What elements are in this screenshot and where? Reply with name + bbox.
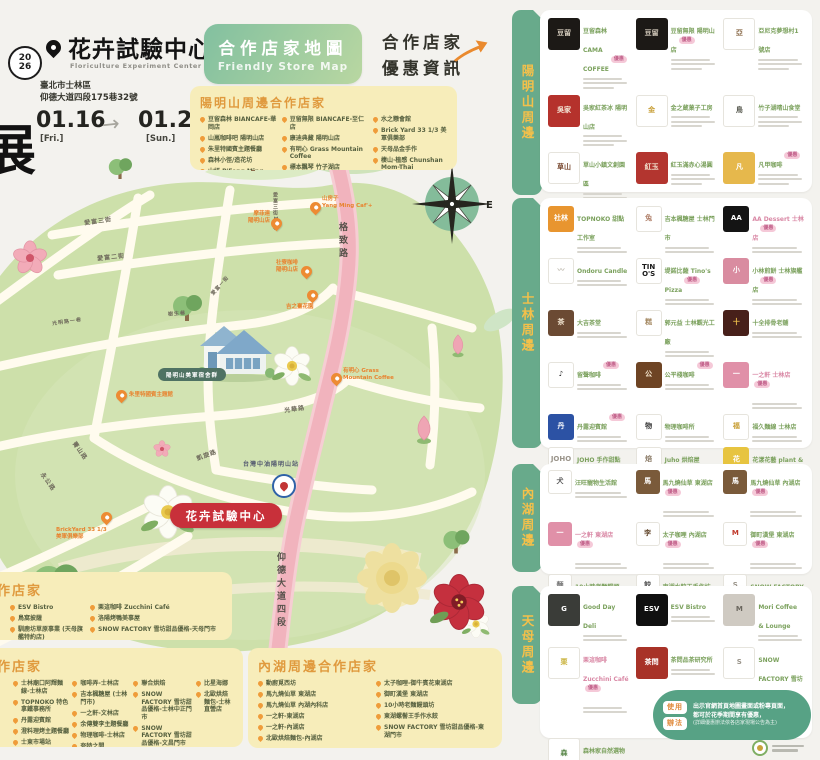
store-list-item[interactable]: 東湖螺髻王手作水餃: [376, 713, 490, 721]
store-column: 咖啡弄-士林店吉本楓糖屋 (士林門市)一之軒-文林店余傳雙李主題餐廳物理咖啡-士…: [72, 680, 130, 747]
store-list-item[interactable]: 物理咖啡-士林店: [72, 732, 130, 740]
store-name: Brick Yard 33 1/3 美軍俱樂部: [381, 127, 447, 142]
map-pin-icon: [375, 713, 382, 720]
store-name: 10小時老麵饅頭坊: [384, 702, 490, 710]
store-list-item[interactable]: 栗這咖啡 Zucchini Café: [90, 604, 218, 612]
store-list-item[interactable]: 北歐烘焙麵包-士林直營店: [196, 691, 233, 714]
fine-print-line: [671, 174, 710, 176]
store-logo: TINO'S: [636, 258, 662, 284]
store-column: 豆留森林 BIANCAFE-華岡店山嵐咖啡吧 陽明山店朱里特國賓主題餐廳森林小徑…: [200, 116, 278, 170]
fine-print-line: [665, 303, 715, 305]
store-card[interactable]: AA AA Dessert 士林店優惠: [723, 206, 804, 253]
pin-label-line: 吉之臺花園: [286, 304, 314, 311]
store-card[interactable]: 草山 草山小鎮文創園區: [548, 152, 629, 204]
discount-badge: 優惠: [752, 489, 768, 496]
store-list-item[interactable]: 太子咖哩-御牛賓花東湖店: [376, 680, 490, 688]
map-pin-icon: [89, 626, 96, 633]
store-list-item[interactable]: SNOW FACTORY 雪坊甜品優格-文昌門市: [133, 725, 193, 748]
store-card-text: 豆留森林 CAMA COFFEE優惠: [583, 18, 629, 89]
store-card[interactable]: 丹 丹露迎賓館優惠: [548, 414, 629, 442]
store-card-name: 吳家紅茶冰 陽明山店: [583, 105, 627, 131]
map-pin-icon: [195, 680, 202, 687]
store-card[interactable]: 社林 TOPNOKO 甜點工作室: [548, 206, 629, 253]
store-list-item[interactable]: 士東市場站: [13, 739, 69, 747]
store-card-text: 栗這咖啡 Zucchini Café優惠: [583, 647, 629, 713]
store-card[interactable]: 馬 馬九燒仙草 東湖店優惠: [636, 470, 717, 517]
store-card-text: 郭元益 士林觀光工廠: [665, 310, 717, 357]
fine-print-line: [758, 116, 797, 118]
fine-print-line: [575, 496, 627, 498]
store-logo: 草山: [548, 152, 580, 184]
map-pin-icon: [375, 724, 382, 731]
store-card-text: 凡甲咖啡優惠: [758, 152, 804, 185]
store-card-name: 森林家自然選物: [583, 748, 625, 755]
store-card[interactable]: 栗 栗這咖啡 Zucchini Café優惠: [548, 647, 629, 732]
year-bottom: 26: [19, 63, 32, 72]
discount-badge: 優惠: [577, 541, 593, 548]
store-card-name: Mori Coffee & Lounge: [758, 604, 797, 630]
store-logo: 兔: [636, 206, 662, 232]
store-card-text: Mori Coffee & Lounge: [758, 594, 804, 641]
store-logo: 鳥: [723, 95, 755, 127]
map-pin-icon: [195, 691, 202, 698]
store-card[interactable]: M 御町漢堡 東湖店優惠: [723, 522, 804, 569]
discount-badge: 優惠: [603, 362, 619, 369]
store-list-item[interactable]: 夸特之間: [72, 743, 130, 748]
store-card-name: JOHO 手作甜點: [577, 457, 621, 464]
fine-print-line: [577, 388, 627, 390]
store-card-text: TOPNOKO 甜點工作室: [577, 206, 629, 253]
road-label-yangde: 仰德大道四段: [274, 552, 287, 630]
fine-print-line: [577, 251, 627, 253]
store-card-text: 小林煎餅 士林旗艦店優惠: [752, 258, 804, 305]
store-card[interactable]: 〰 Ondoru Candle: [548, 258, 629, 305]
store-card[interactable]: 鳥 竹子湖晴山食堂: [723, 95, 804, 147]
store-card-name: 物理咖啡所: [665, 424, 695, 431]
store-card-text: 物理咖啡所: [665, 414, 717, 442]
store-card[interactable]: 茶 大吉茶堂: [548, 310, 629, 357]
store-card[interactable]: 糕 郭元益 士林觀光工廠: [636, 310, 717, 357]
fine-print-line: [671, 178, 715, 180]
shilin-store-list: 士林周邊合作店家 士林廟口阿輝麵線-士林店TOPNOKO 特色拿鐵事務所丹露迎賓…: [0, 648, 243, 747]
map-pin-icon: [199, 134, 206, 141]
store-logo: 亞: [723, 18, 755, 50]
store-name: 山妍 P'Feng Ming Caf'+: [208, 168, 278, 171]
store-card[interactable]: G Good Day Deli: [548, 594, 629, 641]
fine-print-line: [750, 511, 796, 513]
store-card-name: 栗這咖啡 Zucchini Café: [583, 657, 629, 683]
store-logo: 社林: [548, 206, 574, 232]
store-list-item[interactable]: 山妍 P'Feng Ming Caf'+: [200, 168, 278, 171]
store-name: SNOW FACTORY 雪坊甜品優格-士林中正門市: [141, 691, 193, 721]
store-logo: 豆留: [636, 18, 668, 50]
store-card-text: 大吉茶堂: [577, 310, 629, 338]
store-logo: 豆留: [548, 18, 580, 50]
fine-print-line: [577, 436, 621, 438]
fine-print-line: [758, 183, 789, 185]
fine-print-line: [671, 63, 715, 65]
store-list-item[interactable]: 洛陽烤鴨美事屋: [90, 615, 218, 623]
store-list-item[interactable]: 比星海娜: [196, 680, 233, 688]
fine-print-line: [583, 135, 622, 137]
store-logo: 栗: [548, 647, 580, 679]
store-list-item[interactable]: SNOW FACTORY 雪坊甜品優格-東湖門市: [376, 724, 490, 739]
store-card[interactable]: 金 金之蔵菓子工房: [636, 95, 717, 147]
fine-print-line: [583, 82, 627, 84]
store-name: 山嵐咖啡吧 陽明山店: [208, 135, 278, 143]
store-card-name: ESV Bistro: [671, 604, 706, 611]
tree-icon: [109, 158, 132, 179]
fine-print-line: [577, 247, 621, 249]
store-card-text: 吉本楓糖屋 士林門市: [665, 206, 717, 253]
store-list-item[interactable]: 豆留森林 BIANCAFE-華岡店: [200, 116, 278, 131]
store-list-item[interactable]: 山嵐咖啡吧 陽明山店: [200, 135, 278, 143]
store-name: 北歐烘焙麵包-內湖店: [266, 735, 372, 743]
tab-neihu[interactable]: 內湖周邊: [512, 464, 542, 572]
store-card[interactable]: 福 福久麵線 士林店: [723, 414, 804, 442]
banner-title: 合作店家地圖: [219, 35, 348, 59]
tab-tianmu[interactable]: 天母周邊: [512, 586, 542, 704]
fine-print-line: [671, 669, 710, 671]
usage-badge: 使用: [663, 701, 687, 714]
tab-label: 士林周邊: [518, 292, 537, 354]
store-list-item[interactable]: 余傳雙李主題餐廳: [72, 721, 130, 729]
store-map-banner: 合作店家地圖 Friendly Store Map: [204, 24, 362, 84]
house-label: 陽明山美軍宿舍群: [158, 368, 226, 381]
store-logo: 李: [636, 522, 660, 546]
store-column: 太子咖哩-御牛賓花東湖店御町漢堡 東湖店10小時老麵饅頭坊東湖螺髻王手作水餃SN…: [376, 680, 490, 743]
map-pin-icon: [132, 724, 139, 731]
store-card[interactable]: 馬 馬九燒仙草 內湖店優惠: [723, 470, 804, 517]
fine-print-line: [758, 59, 797, 61]
fine-print-line: [577, 384, 621, 386]
store-list-item[interactable]: 士林廟口阿輝麵線-士林店: [13, 680, 69, 695]
store-name: 比星海娜: [204, 680, 233, 688]
fine-print-line: [583, 78, 622, 80]
fine-print-line: [575, 563, 621, 565]
map-pin-icon: [132, 691, 139, 698]
discount-badge: 優惠: [784, 152, 800, 159]
address-line1: 臺北市士林區: [40, 80, 138, 92]
center-venue-badge[interactable]: 花卉試驗中心: [170, 503, 282, 528]
store-card[interactable]: 兔 吉本楓糖屋 士林門市: [636, 206, 717, 253]
map-pin-icon: [9, 626, 16, 633]
map-pin-icon: [132, 680, 139, 687]
store-name: 物理咖啡-士林店: [80, 732, 130, 740]
store-card[interactable]: M Mori Coffee & Lounge: [723, 594, 804, 641]
discount-badge: 優惠: [611, 56, 627, 63]
fine-print-line: [671, 59, 710, 61]
store-card-name: 留聲咖啡: [577, 372, 601, 379]
store-list-item[interactable]: 一之軒-內湖店: [258, 724, 372, 732]
map-pin-icon: [257, 735, 264, 742]
fine-print-line: [663, 567, 715, 569]
store-card-name: 丹露迎賓館: [577, 424, 607, 431]
map-pin-icon: [199, 116, 206, 123]
store-card-text: 金之蔵菓子工房: [671, 95, 717, 128]
store-card-text: AA Dessert 士林店優惠: [752, 206, 804, 253]
store-card[interactable]: 李 太子咖哩 內湖店優惠: [636, 522, 717, 569]
map-pin-icon: [281, 145, 288, 152]
store-list-item[interactable]: 10小時老麵饅頭坊: [376, 702, 490, 710]
fine-print-line: [583, 635, 622, 637]
fine-print-line: [752, 440, 802, 442]
list-title: 陽明山周邊合作店家: [200, 94, 447, 111]
map-pin-icon: [199, 167, 206, 170]
store-card-name: 馬九燒仙草 內湖店: [750, 480, 800, 487]
tab-yangmingshan[interactable]: 陽明山周邊: [512, 10, 542, 195]
store-card-text: 福久麵線 士林店: [752, 414, 804, 442]
store-column: 水之戀會館Brick Yard 33 1/3 美軍俱樂部天母品金手作棲山·植感 …: [373, 116, 447, 170]
map-pin-icon: [71, 709, 78, 716]
store-name: 豆留無限 BIANCAFE-至仁店: [290, 116, 369, 131]
store-card[interactable]: 森 森林家自然選物: [548, 738, 629, 760]
fine-print-line: [665, 299, 709, 301]
store-logo: 福: [723, 414, 749, 440]
store-list-item[interactable]: 棲山·植感 Chunshan Mom-Thai Glamping: [373, 157, 447, 171]
map-pin-icon: [372, 156, 379, 163]
event-glyph: 展: [0, 124, 36, 178]
fine-print-line: [575, 492, 621, 494]
store-column: 聯合烘焙SNOW FACTORY 雪坊甜品優格-士林中正門市SNOW FACTO…: [133, 680, 193, 747]
store-logo: S: [723, 647, 755, 679]
store-card[interactable]: 豆留 豆留無限 陽明山店優惠: [636, 18, 717, 89]
discount-badge: 優惠: [665, 541, 681, 548]
store-card[interactable]: 物 物理咖啡所: [636, 414, 717, 442]
page-title: 花卉試驗中心: [68, 30, 212, 64]
fine-print-line: [752, 403, 796, 405]
map-pin-icon: [281, 134, 288, 141]
fine-print-line: [583, 193, 622, 195]
store-list-item[interactable]: 天母品金手作: [373, 146, 447, 154]
store-list-item[interactable]: 北歐烘焙麵包-內湖店: [258, 735, 372, 743]
map-pin-icon: [257, 702, 264, 709]
store-list-item[interactable]: 馬九燒仙草 東湖店: [258, 691, 372, 699]
yangmingshan-store-list: 陽明山周邊合作店家 豆留森林 BIANCAFE-華岡店山嵐咖啡吧 陽明山店朱里特…: [190, 86, 457, 170]
pin-label-line: Yang Ming Caf'+: [322, 203, 373, 210]
road-label-gezhi: 格致路: [336, 222, 349, 261]
map-pin-icon: [372, 127, 379, 134]
store-logo: 一: [723, 362, 749, 388]
page-subtitle: Floriculture Experiment Center: [70, 62, 202, 70]
store-card-text: 茶問品茶研究所: [671, 647, 717, 675]
store-card[interactable]: 凡 凡甲咖啡優惠: [723, 152, 804, 204]
store-list-item[interactable]: SNOW FACTORY 雪坊甜品優格-士林中正門市: [133, 691, 193, 721]
store-card[interactable]: 一 一之軒 東湖店優惠: [548, 522, 629, 569]
yellow-flower-icon: [357, 543, 427, 613]
section-yangmingshan-stores: 豆留 豆留森林 CAMA COFFEE優惠 豆留 豆留無限 陽明山店優惠: [540, 10, 812, 192]
store-card-text: 公平棧咖啡優惠: [665, 362, 717, 390]
store-card-text: 草山小鎮文創園區: [583, 152, 629, 204]
store-list-item[interactable]: 豆留無限 BIANCAFE-至仁店: [282, 116, 369, 131]
usage-badges: 使用 辦法: [663, 701, 687, 730]
store-list-item[interactable]: 丹露迎賓館: [13, 717, 69, 725]
store-list-item[interactable]: ESV Bistro: [10, 604, 86, 612]
store-logo: M: [723, 522, 747, 546]
store-card-name: 竹子湖晴山食堂: [758, 105, 800, 112]
map-pin-icon: [89, 615, 96, 622]
store-card-name: 福久麵線 士林店: [752, 424, 796, 431]
map-pin-icon: [12, 680, 19, 687]
pin-label: 有明心 Grass Mountain Coffee: [343, 368, 394, 382]
store-logo: 一: [548, 522, 572, 546]
fine-print-line: [665, 384, 709, 386]
date-end-day: [Sun.]: [146, 134, 175, 144]
store-name: 太子咖哩-御牛賓花東湖店: [384, 680, 490, 688]
fine-print-line: [752, 303, 802, 305]
pin-label: 吉之臺花園: [286, 304, 314, 311]
fine-print-line: [752, 299, 796, 301]
discount-badge: 優惠: [760, 277, 776, 284]
store-card-text: Good Day Deli: [583, 594, 629, 641]
fine-print-line: [577, 284, 627, 286]
discount-badge: 優惠: [665, 489, 681, 496]
fine-print-line: [750, 563, 796, 565]
store-list-item[interactable]: 聯合烘焙: [133, 680, 193, 688]
store-list-item[interactable]: 澄料理烤主題餐廳: [13, 728, 69, 736]
store-logo: 紅玉: [636, 152, 668, 184]
map-pin-icon: [89, 604, 96, 611]
store-list-item[interactable]: 朱里特國賓主題餐廳: [200, 146, 278, 154]
fine-print-line: [575, 567, 627, 569]
store-list-item[interactable]: 一之軒-文林店: [72, 710, 130, 718]
store-card[interactable]: 亞 亞尼克夢想村1號店: [723, 18, 804, 89]
store-card[interactable]: ESV ESV Bistro: [636, 594, 717, 641]
store-card[interactable]: 一 一之軒 士林店優惠: [723, 362, 804, 409]
store-list-item[interactable]: 水之戀會館: [373, 116, 447, 124]
map-pin-icon: [71, 720, 78, 727]
store-column: ESV Bistro鳥窩披薩馴鹿坊草原事業 (天母旗艦特約店): [10, 604, 86, 640]
store-name: 一之軒-東湖店: [266, 713, 372, 721]
discount-badge: 優惠: [609, 414, 625, 421]
fine-print-line: [752, 332, 796, 334]
store-list-item[interactable]: TOPNOKO 特色拿鐵事務所: [13, 699, 69, 714]
tab-label: 陽明山周邊: [518, 64, 537, 142]
pin-label-line: 陽明山店: [238, 218, 270, 225]
pin-label: 社寮咖啡 陽明山店: [264, 260, 298, 274]
store-card-text: 御町漢堡 東湖店優惠: [750, 522, 804, 569]
store-card-name: 亞尼克夢想村1號店: [758, 28, 798, 54]
fine-print-line: [671, 125, 702, 127]
address: 臺北市士林區 仰德大道四段175巷32號: [40, 80, 138, 105]
store-list-item[interactable]: 御町漢堡 東湖店: [376, 691, 490, 699]
store-card[interactable]: 犬 汪旺寵物生活館: [548, 470, 629, 517]
map-pin-icon: [257, 680, 264, 687]
store-name: 馬九燒仙草 內湖內科店: [266, 702, 372, 710]
store-name: TOPNOKO 特色拿鐵事務所: [21, 699, 69, 714]
store-name: 東湖螺髻王手作水餃: [384, 713, 490, 721]
store-card-text: Ondoru Candle: [577, 258, 629, 286]
store-logo: 凡: [723, 152, 755, 184]
store-card[interactable]: 豆留 豆留森林 CAMA COFFEE優惠: [548, 18, 629, 89]
list-title: 內湖周邊合作店家: [258, 656, 492, 675]
store-logo: 馬: [636, 470, 660, 494]
store-card-text: 亞尼克夢想村1號店: [758, 18, 804, 70]
discount-badge: 優惠: [752, 541, 768, 548]
store-list-item[interactable]: 一之軒-東湖店: [258, 713, 372, 721]
store-list-item[interactable]: 馬九燒仙草 內湖內科店: [258, 702, 372, 710]
store-list-item[interactable]: 標本飄琴 竹子湖店: [282, 164, 369, 170]
store-list-item[interactable]: 咖啡弄-士林店: [72, 680, 130, 688]
store-name: 洛陽烤鴨美事屋: [98, 615, 218, 623]
tab-shilin[interactable]: 士林周邊: [512, 198, 542, 448]
store-list-item[interactable]: 鳥窩披薩: [10, 615, 86, 623]
fine-print-line: [577, 332, 621, 334]
store-logo: 森: [548, 738, 580, 760]
neihu-store-list: 內湖周邊合作店家 動廚覓西坊馬九燒仙草 東湖店馬九燒仙草 內湖內科店一之軒-東湖…: [248, 648, 502, 748]
store-card[interactable]: 小 小林煎餅 士林旗艦店優惠: [723, 258, 804, 305]
store-card-name: 紅玉滿赤心湯圓: [671, 162, 713, 169]
store-list-item[interactable]: Brick Yard 33 1/3 美軍俱樂部: [373, 127, 447, 142]
store-logo: 十: [723, 310, 749, 336]
store-card[interactable]: 十 十全排骨老舖: [723, 310, 804, 357]
store-card[interactable]: 吳家 吳家紅茶冰 陽明山店: [548, 95, 629, 147]
store-card[interactable]: TINO'S 堤諾比薩 Tino's Pizza優惠: [636, 258, 717, 305]
store-logo: 犬: [548, 470, 572, 494]
store-logo: ♪: [548, 362, 574, 388]
store-logo: M: [723, 594, 755, 626]
store-name: 士東市場站: [21, 739, 69, 747]
fine-print-line: [752, 251, 802, 253]
store-name: 栗這咖啡 Zucchini Café: [98, 604, 218, 612]
store-name: SNOW FACTORY 雪坊甜品優格-文昌門市: [141, 725, 193, 748]
store-card[interactable]: ♪ 留聲咖啡優惠: [548, 362, 629, 409]
store-list-item[interactable]: 森林小徑/造花坊: [200, 157, 278, 165]
store-card-text: 汪旺寵物生活館: [575, 470, 629, 498]
discount-badge: 優惠: [697, 362, 713, 369]
fine-print-line: [665, 440, 715, 442]
store-card-name: 太子咖哩 內湖店: [663, 532, 707, 539]
organizer-logo-text: [772, 745, 804, 752]
discount-badge: 優惠: [679, 37, 695, 44]
store-list-item[interactable]: 吉本楓糖屋 (士林門市): [72, 691, 130, 706]
fine-print-line: [671, 68, 702, 70]
fine-print-line: [671, 121, 715, 123]
pin-label-line: 有明心 Grass: [343, 368, 394, 375]
store-list-item[interactable]: 馴鹿坊草原事業 (天母旗艦特約店): [10, 626, 86, 640]
store-name: 康迪典藏 陽明山店: [290, 135, 369, 143]
fine-print-line: [758, 174, 797, 176]
store-card-name: 凡甲咖啡: [758, 162, 782, 169]
store-list-item[interactable]: 康迪典藏 陽明山店: [282, 135, 369, 143]
store-list-item[interactable]: 有明心 Grass Mountain Coffee: [282, 146, 369, 161]
fine-print-line: [583, 87, 614, 89]
store-card-name: TOPNOKO 甜點工作室: [577, 216, 624, 242]
store-name: 北歐烘焙麵包-士林直營店: [204, 691, 233, 714]
usage-instructions-box: 使用 辦法 出示官網首頁地圖畫面或粉專頁面， 都可於花季期間享有優惠， (詳細優…: [653, 690, 811, 740]
store-logo: 吳家: [548, 95, 580, 127]
store-column: 動廚覓西坊馬九燒仙草 東湖店馬九燒仙草 內湖內科店一之軒-東湖店一之軒-內湖店北…: [258, 680, 372, 743]
store-card[interactable]: 紅玉 紅玉滿赤心湯圓: [636, 152, 717, 204]
discount-badge: 優惠: [684, 277, 700, 284]
store-card[interactable]: 公 公平棧咖啡優惠: [636, 362, 717, 409]
store-card-name: 公平棧咖啡: [665, 372, 695, 379]
usage-line: 出示官網首頁地圖畫面或粉專頁面，: [693, 702, 789, 711]
store-card-name: 一之軒 士林店: [752, 372, 790, 379]
map-pin-icon: [71, 691, 78, 698]
store-name: 有明心 Grass Mountain Coffee: [290, 146, 369, 161]
year-badge: 20 26: [8, 46, 42, 80]
store-name: 士林廟口阿輝麵線-士林店: [21, 680, 69, 695]
store-card-text: ESV Bistro: [671, 594, 717, 622]
store-card-name: 茶問品茶研究所: [671, 657, 713, 664]
store-logo: ESV: [636, 594, 668, 626]
store-list-item[interactable]: 動廚覓西坊: [258, 680, 372, 688]
store-logo: 物: [636, 414, 662, 440]
map-pin-icon: [9, 615, 16, 622]
store-logo: 茶問: [636, 647, 668, 679]
store-list-item[interactable]: SNOW FACTORY 雪坊甜品優格-天母門市: [90, 626, 218, 634]
